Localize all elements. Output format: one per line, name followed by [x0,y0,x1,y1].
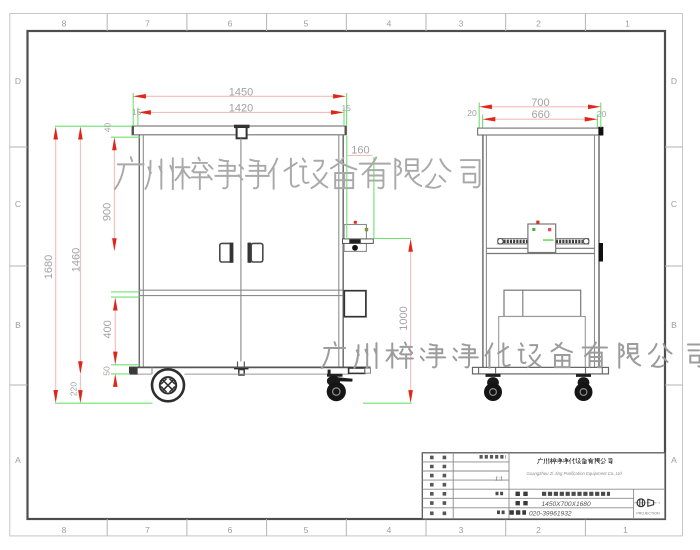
svg-text:1450: 1450 [229,86,253,98]
svg-text:1450X700X1680: 1450X700X1680 [542,501,591,508]
svg-text:20: 20 [467,108,477,118]
svg-text:5: 5 [304,525,309,535]
svg-text:7: 7 [145,19,150,29]
svg-text:1:1: 1:1 [495,476,503,482]
svg-text:D: D [15,76,21,86]
svg-text:1460: 1460 [71,248,83,272]
svg-text:4: 4 [387,525,392,535]
svg-text:1680: 1680 [43,255,55,279]
svg-text:8: 8 [62,19,67,29]
svg-text:40: 40 [103,123,113,133]
svg-text:7: 7 [145,525,150,535]
svg-text:C: C [15,199,21,209]
svg-text:6: 6 [228,525,233,535]
svg-text:700: 700 [531,97,549,109]
svg-text:3: 3 [459,525,464,535]
svg-text:A: A [671,455,677,465]
svg-text:020-39961932: 020-39961932 [529,510,572,517]
svg-text:D: D [671,76,677,86]
svg-text:1000: 1000 [398,306,410,330]
svg-text:2: 2 [536,525,541,535]
svg-text:15: 15 [132,107,142,117]
svg-text:Guangzhou Zi Jing Purification: Guangzhou Zi Jing Purification Equipment… [526,471,622,476]
svg-text:220: 220 [69,382,79,396]
svg-text:B: B [15,320,21,330]
svg-text:400: 400 [102,320,114,338]
svg-text:20: 20 [597,109,607,119]
svg-text:50: 50 [102,366,112,376]
svg-text:1420: 1420 [229,103,253,115]
svg-text:5: 5 [304,19,309,29]
svg-text:6: 6 [228,19,233,29]
svg-text:900: 900 [102,203,114,221]
svg-text:8: 8 [62,525,67,535]
svg-text:1: 1 [623,525,628,535]
svg-text:2: 2 [536,19,541,29]
svg-text:A: A [15,455,21,465]
svg-text:160: 160 [351,144,369,156]
svg-text:15: 15 [341,103,351,113]
svg-text:3: 3 [459,19,464,29]
svg-text:C: C [671,199,677,209]
svg-text:B: B [671,320,677,330]
svg-text:1: 1 [625,19,630,29]
svg-text:4: 4 [387,19,392,29]
svg-text:660: 660 [532,109,550,121]
svg-text:PROJECTION: PROJECTION [636,512,660,516]
